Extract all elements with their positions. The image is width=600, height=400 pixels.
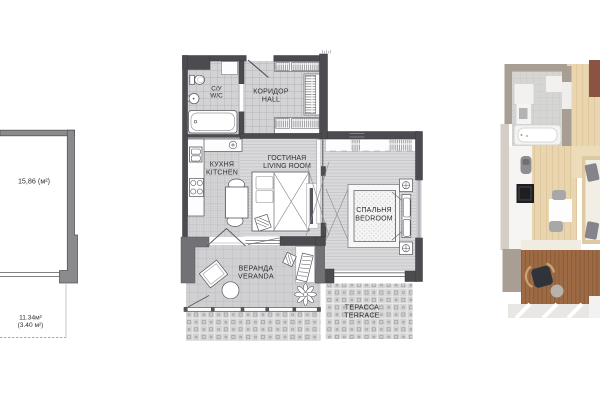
svg-text:СПАЛЬНЯ: СПАЛЬНЯ — [356, 207, 392, 214]
svg-text:ГОСТИНАЯ: ГОСТИНАЯ — [268, 155, 307, 162]
svg-text:КОРИДОР: КОРИДОР — [253, 89, 289, 96]
svg-text:KITCHEN: KITCHEN — [206, 170, 238, 177]
svg-text:TERRACE: TERRACE — [344, 313, 380, 320]
svg-text:VERANDA: VERANDA — [238, 274, 274, 281]
svg-text:(3.40 м²): (3.40 м²) — [18, 322, 44, 329]
svg-text:11.34м²: 11.34м² — [19, 315, 43, 322]
svg-text:HALL: HALL — [262, 97, 280, 104]
svg-text:С/У: С/У — [211, 86, 222, 93]
svg-text:W/C: W/C — [210, 93, 223, 100]
svg-text:КУХНЯ: КУХНЯ — [210, 162, 234, 169]
svg-text:15,86 (м²): 15,86 (м²) — [18, 177, 50, 186]
svg-text:LIVING ROOM: LIVING ROOM — [263, 163, 311, 170]
svg-text:ВЕРАНДА: ВЕРАНДА — [239, 266, 274, 273]
svg-text:ТЕРАССА: ТЕРАССА — [345, 305, 379, 312]
svg-text:BEDROOM: BEDROOM — [355, 216, 393, 223]
